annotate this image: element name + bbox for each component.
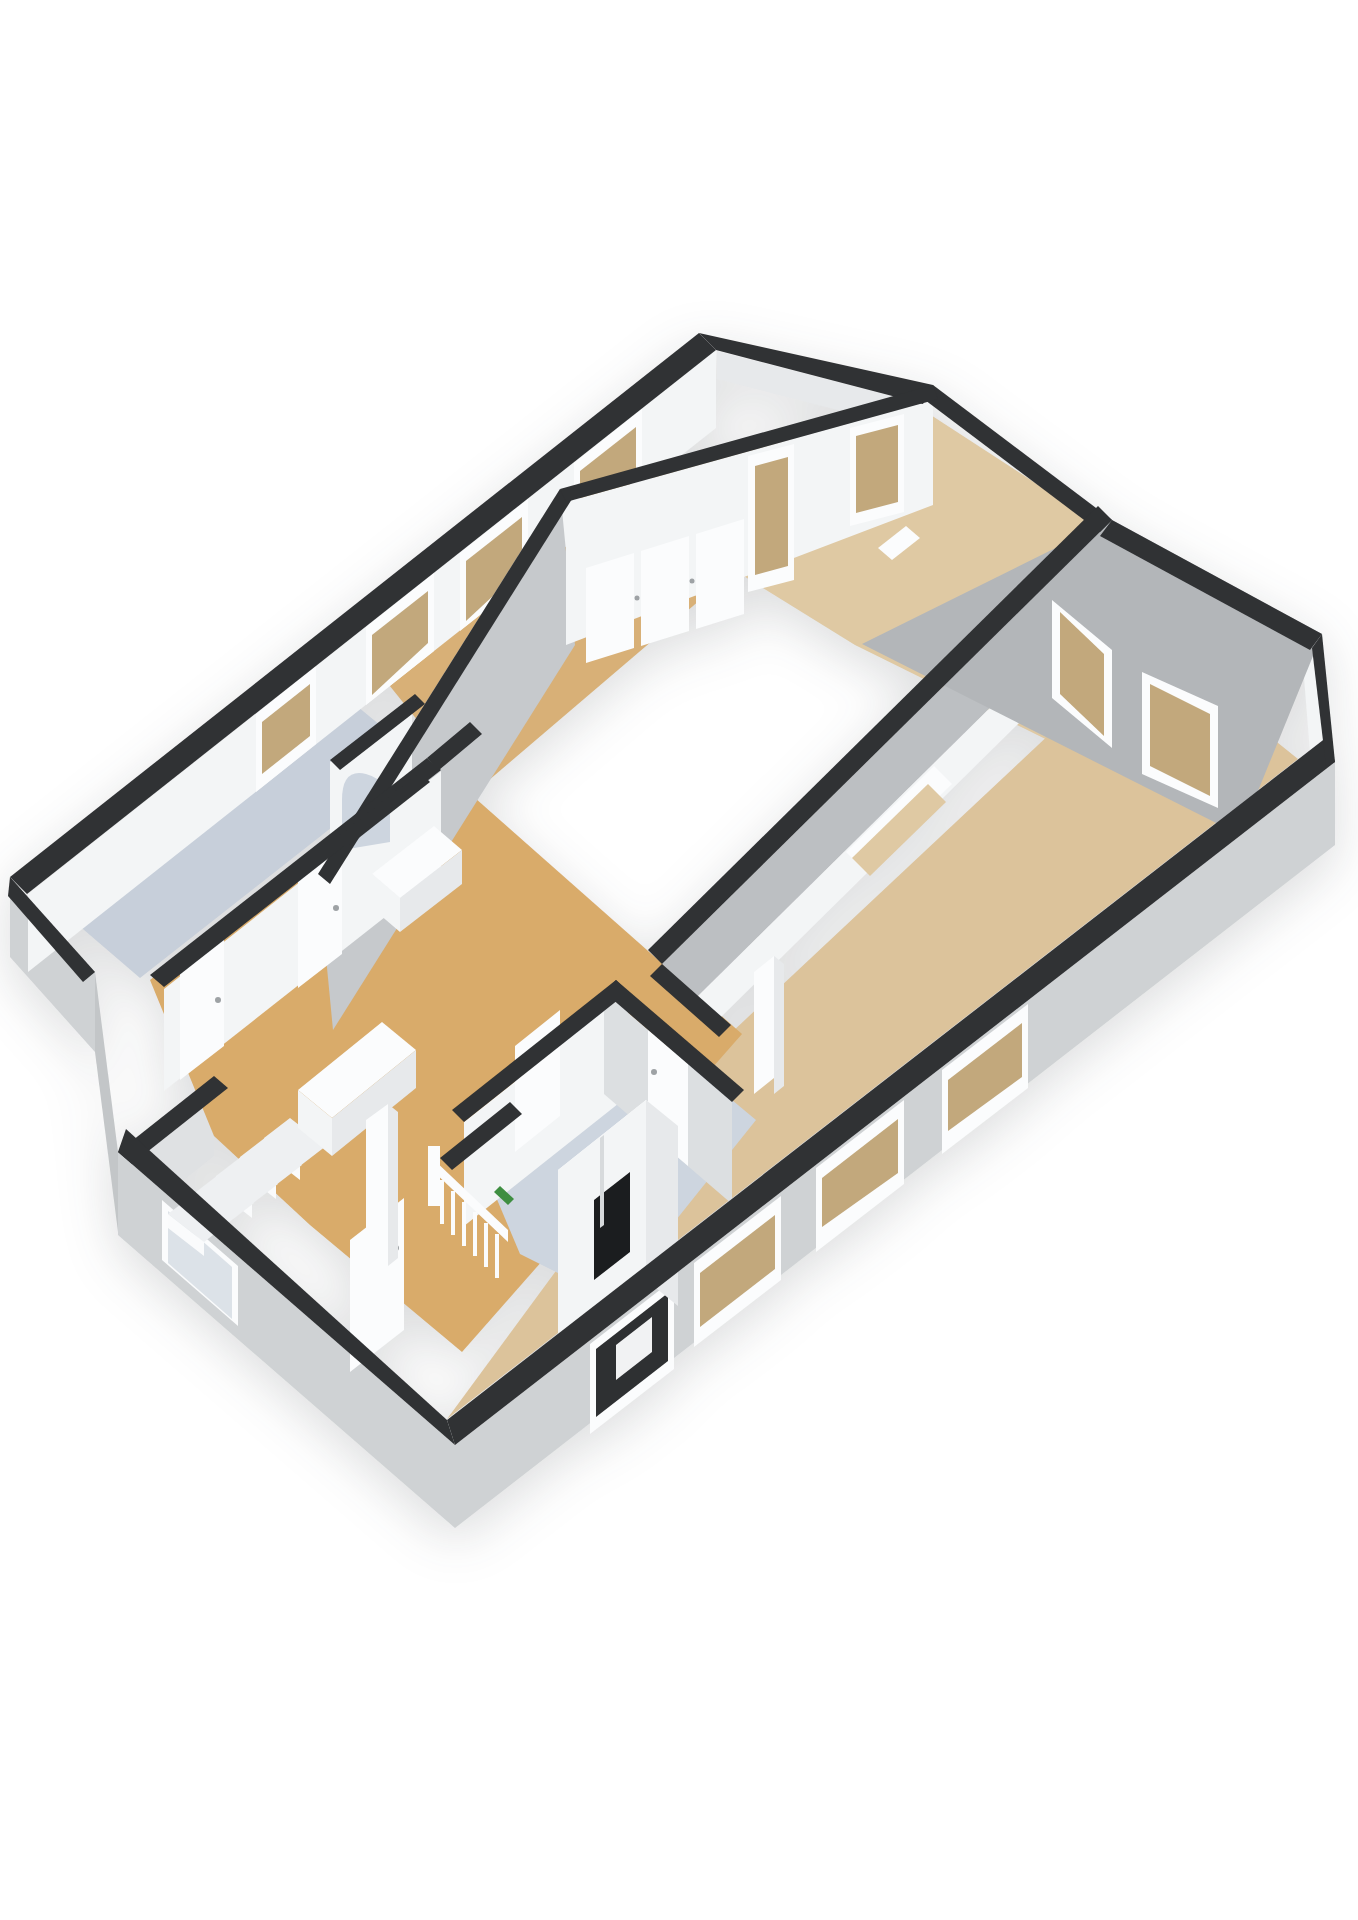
exterior-face-west-edge bbox=[95, 972, 118, 1232]
door-handle-icon bbox=[215, 997, 221, 1003]
railing-baluster bbox=[495, 1234, 499, 1278]
railing-baluster bbox=[462, 1202, 466, 1246]
closet-handle-icon bbox=[690, 579, 695, 584]
closet-door-1 bbox=[586, 553, 634, 663]
closet-handle-icon bbox=[635, 596, 640, 601]
railing-baluster bbox=[484, 1223, 488, 1267]
floorplan-3d-render bbox=[0, 0, 1358, 1920]
landing-pillar-front bbox=[754, 956, 774, 1094]
closet-door-3 bbox=[696, 519, 744, 629]
window-glass-attic-nw bbox=[856, 425, 898, 513]
closet-door-2 bbox=[641, 536, 689, 646]
railing-baluster bbox=[473, 1212, 477, 1256]
wardrobe-seam bbox=[600, 1135, 604, 1228]
door-handle-icon bbox=[333, 905, 339, 911]
railing-baluster bbox=[440, 1180, 444, 1224]
railing-newel-post bbox=[428, 1146, 440, 1206]
floorplan-canvas bbox=[0, 0, 1358, 1920]
door-handle-icon bbox=[651, 1069, 657, 1075]
glazed-door-glass bbox=[755, 457, 788, 575]
chimney-pillar-side bbox=[388, 1104, 398, 1266]
railing-baluster bbox=[451, 1191, 455, 1235]
chimney-pillar-front bbox=[366, 1104, 388, 1266]
landing-pillar-side bbox=[774, 956, 784, 1094]
